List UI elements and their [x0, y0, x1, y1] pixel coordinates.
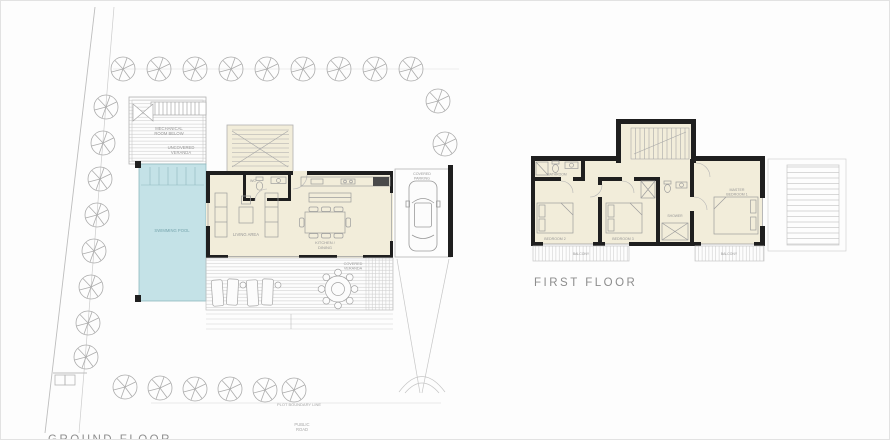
wall-column: [135, 161, 141, 168]
master-bedroom-label: MASTER: [730, 188, 745, 192]
covered-veranda-label: COVERED: [344, 262, 363, 266]
ground-floor-plan: MECHANICAL ROOM BELOW UNCOVERED VERANDA: [45, 7, 459, 440]
parking-wall: [448, 165, 453, 257]
bedroom-2-label: BEDROOM 2: [544, 237, 566, 241]
tree-icon: [85, 203, 109, 227]
covered-veranda-deck: COVERED VERANDA: [206, 258, 393, 329]
bedroom-3-label: BEDROOM 3: [612, 237, 634, 241]
tree-row-bottom: [113, 375, 306, 402]
uncovered-veranda-label-2: VERANDA: [171, 150, 191, 155]
tree-icon: [76, 311, 100, 335]
tree-icon: [253, 378, 277, 402]
covered-parking-label-2: PARKING: [414, 177, 430, 181]
master-bedroom-label-2: BEDROOM 1: [726, 193, 748, 197]
wc-label: WC: [250, 179, 256, 183]
covered-parking: COVERED PARKING: [395, 165, 453, 393]
tree-icon: [426, 89, 450, 113]
living-area-label: LIVING AREA: [233, 232, 259, 237]
tree-icon: [79, 275, 103, 299]
covered-parking-label: COVERED: [413, 172, 431, 176]
public-road-label-2: ROAD: [296, 427, 308, 432]
swimming-pool-label: SWIMMING POOL: [154, 228, 190, 233]
floor-plan-drawing: MECHANICAL ROOM BELOW UNCOVERED VERANDA: [1, 1, 890, 440]
tree-icon: [218, 377, 242, 401]
living-block: WC LIVING AREA: [206, 171, 393, 258]
tree-icon: [91, 131, 115, 155]
bathroom-label: BATHROOM: [547, 173, 567, 177]
tree-icon: [82, 239, 106, 263]
car-icon: [406, 181, 440, 251]
utility-boxes: [55, 375, 75, 385]
tree-icon: [88, 167, 112, 191]
tree-icon: [282, 378, 306, 402]
balcony-right: BALCONY: [695, 246, 764, 261]
staircase: [616, 119, 696, 163]
first-floor-plan: BATHROOM BEDROOM 2: [531, 119, 846, 289]
ground-floor-title: GROUND FLOOR: [48, 434, 172, 440]
tree-column-left: [74, 95, 118, 369]
shower-label: SHOWER: [667, 214, 683, 218]
tree-icon: [433, 132, 457, 156]
balcony-left-label: BALCONY: [573, 252, 590, 256]
swimming-pool: SWIMMING POOL: [135, 161, 206, 302]
mechanical-room-veranda: MECHANICAL ROOM BELOW UNCOVERED VERANDA: [129, 97, 206, 164]
mechanical-room-label-2: ROOM BELOW: [154, 131, 183, 136]
outdoor-dining-table: [318, 269, 358, 309]
roof-veranda: [768, 159, 846, 251]
tree-icon: [94, 95, 118, 119]
fridge: [373, 177, 389, 186]
tree-icon: [148, 376, 172, 400]
covered-veranda-label-2: VERANDA: [344, 267, 363, 271]
deck-steps: [206, 314, 393, 329]
balcony-right-label: BALCONY: [721, 252, 738, 256]
driveway: [397, 259, 449, 393]
entrance-staircase: [227, 125, 293, 173]
plot-boundary-label: PLOT BOUNDARY LINE: [277, 402, 321, 407]
floor-plan-sheet: MECHANICAL ROOM BELOW UNCOVERED VERANDA: [0, 0, 890, 440]
wall-column: [135, 295, 141, 302]
tree-icon: [183, 377, 207, 401]
first-floor-body: [533, 159, 762, 244]
balcony-left: BALCONY: [533, 246, 629, 261]
kitchen-dining-label-2: DINING: [318, 245, 332, 250]
first-floor-title: FIRST FLOOR: [534, 277, 637, 289]
tree-icon: [113, 375, 137, 399]
